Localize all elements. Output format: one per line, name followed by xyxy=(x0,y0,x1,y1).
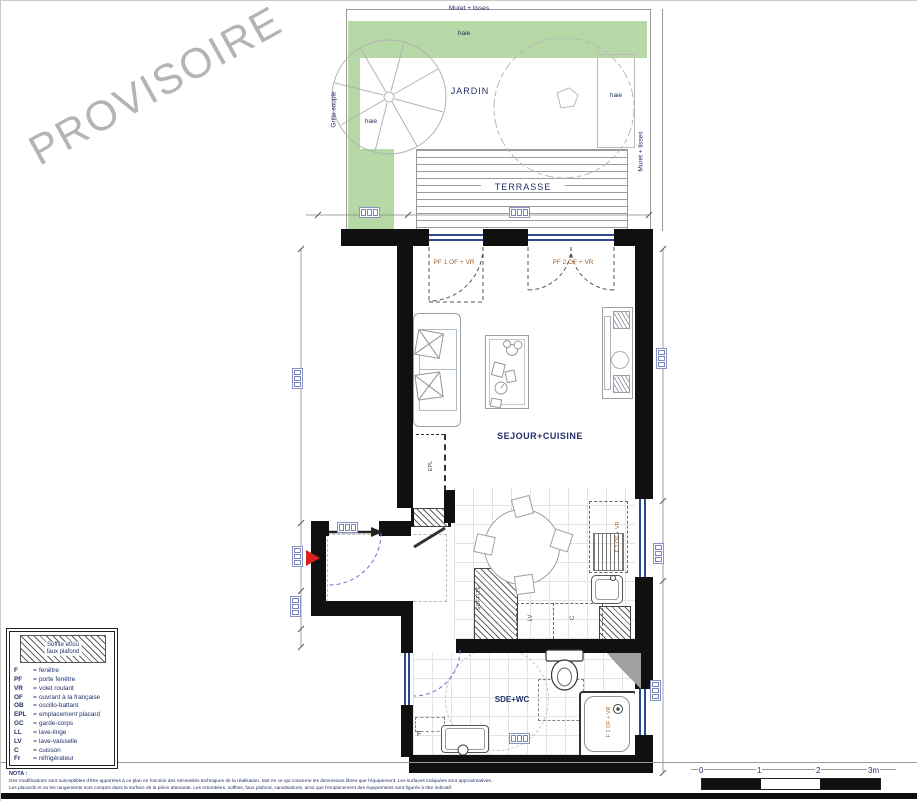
scalebar-label-1: 1 xyxy=(756,766,762,775)
window-door-swings xyxy=(429,247,614,302)
soffite-label: SOFFITE xyxy=(476,578,482,618)
grille-souple-label: Grille souple xyxy=(331,70,338,150)
washbasin-inner xyxy=(445,728,485,750)
hedge-left-strip xyxy=(348,21,360,151)
sde-wc-label: SDE+WC xyxy=(483,695,541,704)
provisoire-watermark: PROVISOIRE xyxy=(21,0,290,175)
legend-item: PF=porte fenêtre xyxy=(14,676,110,685)
kitchen-duct-hatch xyxy=(599,606,631,641)
wall-right-middle xyxy=(635,577,653,689)
epl-label: EPL xyxy=(428,454,434,478)
wall-hall-top-a xyxy=(311,521,329,536)
haie-left-label: haie xyxy=(356,118,386,125)
cuisson-label: C xyxy=(570,608,576,628)
legend-box: Soffite et/ou faux plafond F=fenêtre PF=… xyxy=(6,628,118,769)
legend-item: Fr=réfrigérateur xyxy=(14,755,110,764)
tv-speaker-top xyxy=(613,311,630,329)
muret-top-label: Muret + lisses xyxy=(419,5,519,12)
wall-hall-top-b xyxy=(379,521,411,536)
nota-line-1: Des modifications sont susceptibles d'êt… xyxy=(9,779,659,784)
jardin-label: JARDIN xyxy=(433,86,507,96)
sofa-pillow-bottom xyxy=(414,371,443,400)
window-pf2 xyxy=(528,229,614,246)
haie-right-label: haie xyxy=(601,92,631,99)
legend-item: EPL=emplacement placard xyxy=(14,711,110,720)
counter-dashed-divider xyxy=(553,603,554,639)
wall-bath-left-lower xyxy=(401,705,413,757)
dimension-label xyxy=(650,680,661,701)
hall-dashed-outline xyxy=(327,534,447,602)
wall-hall-left xyxy=(311,536,326,603)
dimension-label xyxy=(509,733,530,744)
pf2-label: PF 2 OF + VR xyxy=(544,259,602,266)
legend-item: F=fenêtre xyxy=(14,667,110,676)
shower-window-label: F 1 OF + VR xyxy=(606,697,612,747)
floor-plan-page: PROVISOIRE Muret + lisses Muret + lisses… xyxy=(0,0,917,801)
lv-label: LV xyxy=(528,608,534,628)
footer-rule xyxy=(1,762,917,763)
window-pf1 xyxy=(429,229,483,246)
wall-hall-bottom xyxy=(311,601,413,616)
dining-table xyxy=(484,509,560,585)
garden-fence-rect xyxy=(597,54,635,148)
muret-right-label: Muret + lisses xyxy=(638,107,645,197)
sejour-cuisine-label: SEJOUR+CUISINE xyxy=(495,431,585,441)
coffee-table-inner xyxy=(489,339,525,405)
scalebar-topline xyxy=(691,769,896,770)
dimension-label xyxy=(292,546,303,567)
dimension-label xyxy=(653,543,664,564)
dimension-label xyxy=(337,522,358,533)
legend-item: OF=ouvrant à la française xyxy=(14,694,110,703)
scalebar-label-3m: 3m xyxy=(867,766,880,775)
legend-swatch-label-1: Soffite et/ou xyxy=(47,642,80,649)
legend-item: C=cuisson xyxy=(14,747,110,756)
wall-top-right xyxy=(614,229,653,246)
dining-chair-south xyxy=(514,574,535,595)
window-bath-left xyxy=(401,653,413,705)
legend-item: LV=lave-vaisselle xyxy=(14,738,110,747)
wall-bottom xyxy=(409,755,653,773)
dimension-label xyxy=(359,207,380,218)
wall-bath-left-upper xyxy=(401,616,413,653)
scalebar-label-2: 2 xyxy=(815,766,821,775)
dimension-label xyxy=(656,348,667,369)
kitchen-window-label: F 2 OF + VR xyxy=(615,512,621,562)
wall-top-left xyxy=(341,229,429,246)
wall-kitchen-bath-divider xyxy=(456,639,635,653)
legend-item: VR=volet roulant xyxy=(14,685,110,694)
pf1-label: PF 1 OF + VR xyxy=(425,259,483,266)
dining-chair-west xyxy=(473,533,496,556)
nota-title: NOTA : xyxy=(9,771,27,777)
dimension-label xyxy=(292,368,303,389)
legend-item: OB=oscillo-battant xyxy=(14,702,110,711)
dimension-label xyxy=(290,596,301,617)
tv-unit-knob xyxy=(611,351,629,369)
epl-dashed-line-h xyxy=(416,434,444,435)
hedge-top-band xyxy=(348,21,647,58)
haie-top-label: haie xyxy=(446,30,482,37)
wall-living-left xyxy=(397,246,413,508)
tv-speaker-bottom xyxy=(613,375,630,393)
terrasse-label: TERRASSE xyxy=(481,182,565,192)
legend-item: LL=lave-linge xyxy=(14,729,110,738)
wall-top-middle xyxy=(483,229,528,246)
wall-epl-stub xyxy=(444,490,455,523)
dimension-label xyxy=(509,207,530,218)
legend-item: GC=garde-corps xyxy=(14,720,110,729)
tv-screen xyxy=(604,316,611,390)
wall-right-upper xyxy=(635,246,653,499)
bath-window-label: F xyxy=(417,731,421,738)
footer-bottom-bar xyxy=(1,793,917,799)
scalebar xyxy=(701,778,881,790)
scalebar-label-0: 0 xyxy=(698,766,704,775)
kitchen-sink-basin xyxy=(595,579,619,600)
legend-swatch: Soffite et/ou faux plafond xyxy=(20,635,106,663)
nota-line-2: Les placards et ou les rangements sont c… xyxy=(9,786,659,791)
garden-outer-line xyxy=(662,9,663,231)
sofa-pillow-top xyxy=(414,329,444,359)
legend-swatch-label-2: faux plafond xyxy=(47,649,80,656)
toilet-dashed-zone xyxy=(538,679,584,721)
